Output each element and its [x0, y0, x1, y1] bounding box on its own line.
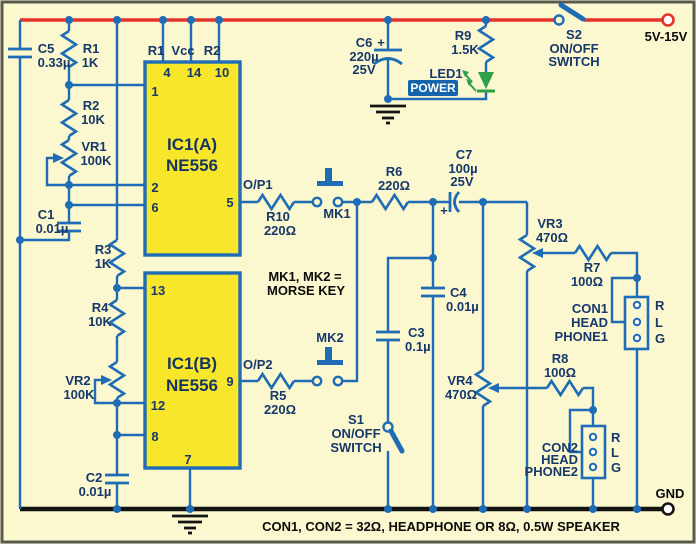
- mk2-label: MK2: [316, 330, 343, 345]
- morse-note-line1: MK1, MK2 =: [268, 269, 342, 284]
- con1-pin-g-label: G: [655, 331, 665, 346]
- c5-name: C5: [38, 41, 55, 56]
- op1-label: O/P1: [243, 177, 273, 192]
- led1-name: LED1: [429, 66, 462, 81]
- ic1b-pin7: 7: [184, 452, 191, 467]
- vr1-value: 100K: [80, 153, 112, 168]
- con2-pin-l: [590, 449, 596, 455]
- con1-pin-g: [634, 335, 640, 341]
- mk1-key-stem: [325, 168, 332, 182]
- mk1-contact: [334, 198, 342, 206]
- con2-pin-g: [590, 464, 596, 470]
- mk1-contact: [313, 198, 321, 206]
- vr2-value: 100K: [63, 387, 95, 402]
- r8-name: R8: [552, 351, 569, 366]
- r7-value: 100Ω: [571, 274, 603, 289]
- op2-label: O/P2: [243, 357, 273, 372]
- c7-name: C7: [456, 147, 473, 162]
- ic1b-name: IC1(B): [167, 354, 217, 373]
- vr4-value: 470Ω: [445, 387, 477, 402]
- c4-value: 0.01µ: [446, 299, 479, 314]
- r3-value: 1K: [95, 256, 112, 271]
- vr4-name: VR4: [447, 373, 473, 388]
- ic1a-net-r1: R1: [148, 43, 165, 58]
- vr2-name: VR2: [65, 373, 90, 388]
- supply-label: 5V-15V: [645, 29, 688, 44]
- power-badge-label: POWER: [410, 81, 456, 95]
- s1-line2: SWITCH: [330, 440, 381, 455]
- ic1a-pin2: 2: [151, 180, 158, 195]
- r1-name: R1: [83, 41, 100, 56]
- c6-polarity: +: [377, 35, 385, 50]
- ic1b-pin13: 13: [151, 283, 165, 298]
- con2-pin-l-label: L: [611, 445, 619, 460]
- r1-value: 1K: [82, 55, 99, 70]
- c7-polarity: +: [440, 203, 448, 218]
- r2-value: 10K: [81, 112, 105, 127]
- con2-pin-r-label: R: [611, 430, 621, 445]
- r6-value: 220Ω: [378, 178, 410, 193]
- ic1b-pin8: 8: [151, 429, 158, 444]
- ic1b-part: NE556: [166, 376, 218, 395]
- ic1a-part: NE556: [166, 156, 218, 175]
- c1-value: 0.01µ: [36, 221, 69, 236]
- mk2-contact: [313, 377, 321, 385]
- s2-name: S2: [566, 27, 582, 42]
- ic1b-pin12: 12: [151, 398, 165, 413]
- r9-name: R9: [455, 28, 472, 43]
- con2-pin-r: [590, 434, 596, 440]
- vr3-name: VR3: [537, 216, 562, 231]
- r10-name: R10: [266, 209, 290, 224]
- positive-terminal: [663, 15, 674, 26]
- mk2-contact: [334, 377, 342, 385]
- ic1a-pin1: 1: [151, 84, 158, 99]
- bottom-caption: CON1, CON2 = 32Ω, HEADPHONE OR 8Ω, 0.5W …: [262, 519, 620, 534]
- r9-value: 1.5K: [451, 42, 479, 57]
- ic1a-pin4: 4: [163, 65, 171, 80]
- c3-name: C3: [408, 325, 425, 340]
- s1-line1: ON/OFF: [331, 426, 380, 441]
- con1-pin-l: [634, 319, 640, 325]
- vr1-name: VR1: [81, 139, 106, 154]
- r5-value: 220Ω: [264, 402, 296, 417]
- ic1a-pin5: 5: [226, 195, 233, 210]
- s2-line2: SWITCH: [548, 54, 599, 69]
- con2-line3: PHONE2: [525, 464, 578, 479]
- ic1a-pin6: 6: [151, 200, 158, 215]
- r8-value: 100Ω: [544, 365, 576, 380]
- c5-value: 0.33µ: [38, 55, 71, 70]
- ic1b-pin9: 9: [226, 374, 233, 389]
- circuit-schematic: IC1(A) NE556 R1 Vcc R2 4 14 10 1 2 6 5 I…: [0, 0, 696, 544]
- mk1-label: MK1: [323, 206, 350, 221]
- r10-value: 220Ω: [264, 223, 296, 238]
- con1-line1: CON1: [572, 301, 608, 316]
- s2-contact: [555, 16, 564, 25]
- c6-voltage: 25V: [352, 62, 375, 77]
- con1-pin-r-label: R: [655, 298, 665, 313]
- con1-pin-l-label: L: [655, 315, 663, 330]
- con1-pin-r: [634, 302, 640, 308]
- r7-name: R7: [584, 260, 601, 275]
- r2-name: R2: [83, 98, 100, 113]
- c2-value: 0.01µ: [79, 484, 112, 499]
- r6-name: R6: [386, 164, 403, 179]
- r4-name: R4: [92, 300, 109, 315]
- c7-voltage: 25V: [450, 174, 473, 189]
- schematic-page: IC1(A) NE556 R1 Vcc R2 4 14 10 1 2 6 5 I…: [0, 0, 696, 544]
- c1-name: C1: [38, 207, 55, 222]
- c2-name: C2: [86, 470, 103, 485]
- gnd-label: GND: [656, 486, 685, 501]
- r4-value: 10K: [88, 314, 112, 329]
- con2-pin-g-label: G: [611, 460, 621, 475]
- mk2-key-stem: [325, 347, 332, 361]
- r3-name: R3: [95, 242, 112, 257]
- s1-name: S1: [348, 412, 364, 427]
- ic1a-pin14: 14: [187, 65, 202, 80]
- ic1a-net-r2: R2: [204, 43, 221, 58]
- ic1a-net-vcc: Vcc: [171, 43, 194, 58]
- ground-terminal: [663, 504, 674, 515]
- c3-value: 0.1µ: [405, 339, 431, 354]
- morse-note-line2: MORSE KEY: [267, 283, 345, 298]
- vr3-value: 470Ω: [536, 230, 568, 245]
- con1-line2: HEAD: [571, 315, 608, 330]
- ic1a-pin10: 10: [215, 65, 229, 80]
- ic1a-name: IC1(A): [167, 135, 217, 154]
- r5-name: R5: [270, 388, 287, 403]
- c4-name: C4: [450, 285, 467, 300]
- con1-line3: PHONE1: [555, 329, 608, 344]
- c6-name: C6: [356, 35, 373, 50]
